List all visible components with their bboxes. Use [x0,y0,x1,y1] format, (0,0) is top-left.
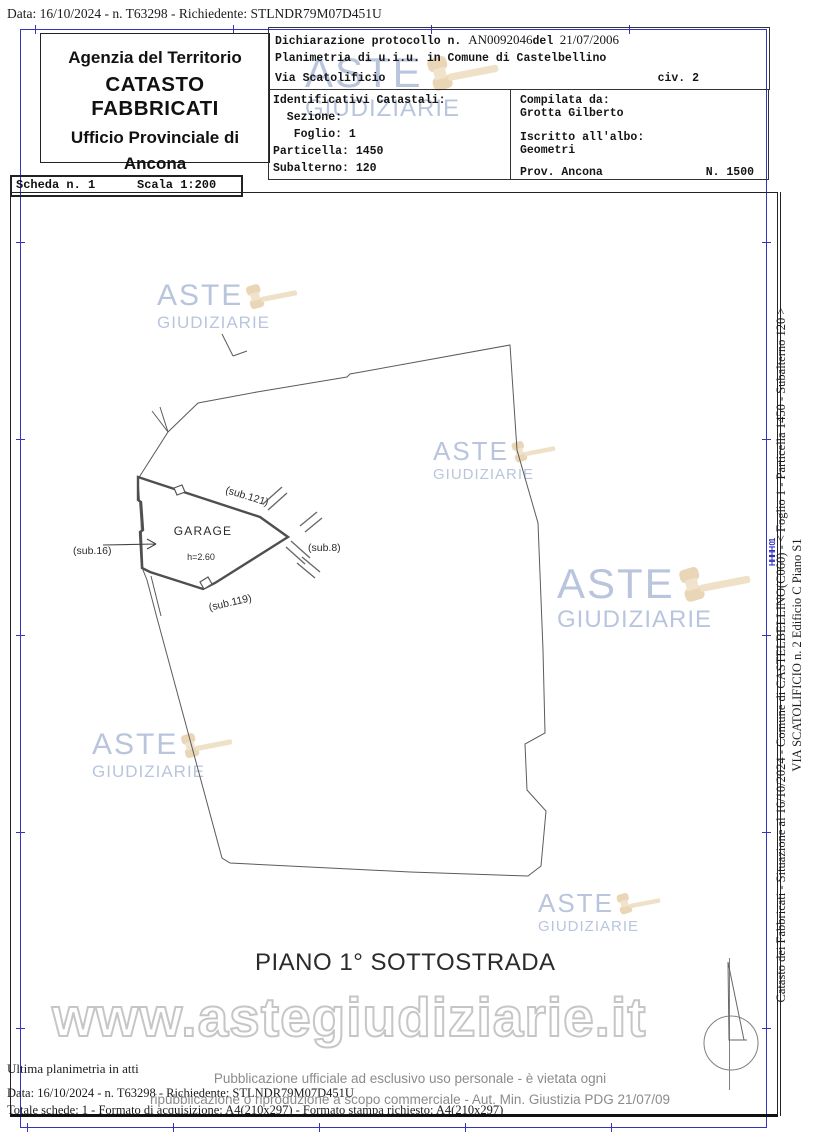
foglio-field: Foglio: 1 [273,128,356,141]
protocol-date: 21/07/2006 [553,32,619,47]
cadastral-document-page: { "page": { "top_line": "Data: 16/10/202… [0,0,813,1143]
subalterno-field: Subalterno: 120 [273,162,377,175]
label-garage: GARAGE [174,524,233,538]
watermark-url: www.astegiudiziarie.it [52,985,647,1049]
footer-publication-line1: Pubblicazione ufficiale ad esclusivo uso… [90,1071,730,1086]
label-sub119: (sub.119) [208,592,253,613]
particella-field: Particella: 1450 [273,145,383,158]
compiler-name: Grotta Gilberto [520,107,624,120]
scheda-box: Scheda n. 1 Scala 1:200 [10,175,243,197]
floor-title: PIANO 1° SOTTOSTRADA [255,949,556,976]
footer-publication-line2: ripubblicazione o riproduzione a scopo c… [90,1092,730,1107]
planimetria-line: Planimetria di u.i.u. in Comune di Caste… [275,52,606,65]
opening-marks [263,487,322,578]
registry-name: CATASTO FABBRICATI [41,73,269,121]
compiler-box: Compilata da: Grotta Gilberto Iscritto a… [510,89,769,180]
agency-name: Agenzia del Territorio [41,48,269,68]
protocol-number: AN0092046 [468,32,532,47]
protocol-line: Dichiarazione protocollo n. AN0092046del… [275,32,619,48]
label-garage-height: h=2.60 [187,552,215,562]
declaration-box: Dichiarazione protocollo n. AN0092046del… [268,27,770,90]
label-sub121: (sub.121) [224,484,270,508]
guide-bottom [20,1127,767,1128]
top-request-line: Data: 16/10/2024 - n. T63298 - Richieden… [7,6,382,22]
civic-number: civ. 2 [658,72,699,85]
label-sub8: (sub.8) [308,542,341,554]
side-caption-line2: VIA SCATOLIFICIO n. 2 Edificio C Piano S… [789,195,805,1115]
scale-value: Scala 1:200 [137,178,216,192]
office-city: Ancona [41,154,269,174]
floor-plan-drawing: (sub.121) (sub.119) (sub.16) (sub.8) GAR… [10,192,776,1116]
register-number: N. 1500 [706,166,754,179]
compiler-label: Compilata da: [520,94,610,107]
register-value: Geometri [520,144,575,157]
blue-stamp: HHHH 01 [768,496,778,566]
identifiers-box: Identificativi Catastali: Sezione: Fogli… [268,89,511,180]
boundary-ticks [151,334,247,616]
label-sub16: (sub.16) [73,545,112,557]
street-line: Via Scatolificio [275,72,385,85]
register-label: Iscritto all'albo: [520,131,644,144]
compiler-province: Prov. Ancona [520,166,603,179]
office-header-box: Agenzia del Territorio CATASTO FABBRICAT… [40,33,270,163]
sezione-field: Sezione: [273,111,342,124]
parcel-boundary [138,345,546,876]
identifiers-title: Identificativi Catastali: [273,94,446,107]
side-caption: Catasto dei Fabbricati - Situazione al 1… [773,195,805,1115]
office-label: Ufficio Provinciale di [41,128,269,148]
side-caption-line1: Catasto dei Fabbricati - Situazione al 1… [773,195,789,1115]
scheda-number: Scheda n. 1 [16,178,95,192]
